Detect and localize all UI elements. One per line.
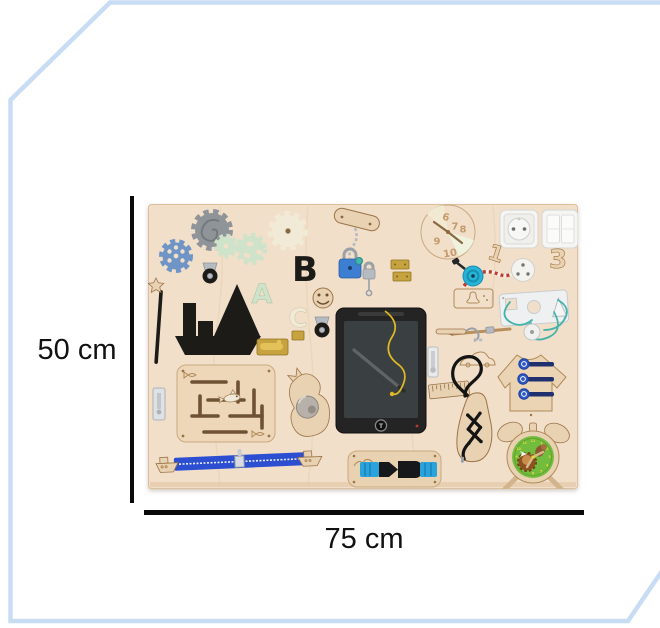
barrel-bolt-icon [257, 339, 288, 355]
buckle-board [348, 451, 441, 487]
spinner-number: 9 [434, 237, 441, 248]
width-dimension-label: 75 cm [298, 523, 430, 556]
zipper-slider-icon [235, 456, 244, 467]
width-dimension-line [144, 510, 584, 515]
wooden-disc-icon [524, 324, 540, 340]
gear-blue-icon [163, 243, 190, 270]
height-dimension-line [130, 196, 134, 503]
svg-text:11: 11 [522, 441, 527, 445]
smiley-face-icon [313, 288, 333, 308]
product-image: 50 cm 75 cm [0, 0, 660, 628]
wooden-number-3: 3 [549, 245, 567, 275]
gear-white-icon [272, 215, 304, 247]
left-slide-bolt-icon [153, 388, 165, 420]
button-icon [518, 359, 529, 399]
letter-b: B [292, 250, 318, 290]
gear-mint-large-icon [238, 236, 264, 262]
caster-wheel-icon [315, 317, 330, 338]
buckle-right-icon [398, 461, 437, 478]
gear-mint-small-icon [217, 237, 236, 256]
spinner-number: 8 [460, 225, 467, 236]
caster-wheel-icon [203, 263, 218, 284]
busy-board-photo: B A C [148, 204, 578, 489]
spinner-number: 7 [452, 222, 459, 233]
small-hinge-icon [292, 331, 304, 340]
slide-bolt-icon [428, 347, 438, 377]
power-socket-icon [500, 210, 538, 248]
height-dimension-label: 50 cm [24, 334, 130, 367]
letter-c: C [288, 304, 307, 334]
lcd-tablet: T [336, 308, 426, 433]
svg-text:10: 10 [516, 447, 521, 451]
shark-maze [177, 365, 275, 442]
light-switch-icon [542, 210, 578, 248]
valve-knob-icon [356, 258, 363, 265]
svg-text:12: 12 [531, 439, 536, 443]
letter-a: A [252, 279, 273, 310]
